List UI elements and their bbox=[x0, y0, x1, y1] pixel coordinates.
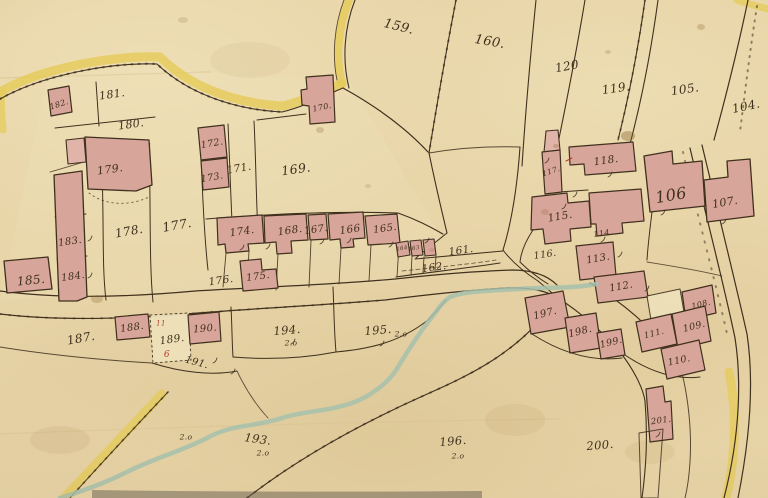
paper-stain bbox=[178, 17, 188, 23]
cadastral-map-scan: 182.181.180.179.170.159.160.120119.105.1… bbox=[0, 0, 768, 498]
surveyor-tick-mark bbox=[213, 358, 217, 363]
boundary-119-path-w bbox=[618, 0, 645, 140]
parcel-194-west bbox=[231, 307, 233, 357]
paper-stain bbox=[605, 50, 611, 54]
paper-stain bbox=[621, 131, 635, 141]
parcel-label-190: 190. bbox=[193, 322, 218, 335]
parcel-label-2o: 2.o bbox=[256, 449, 270, 458]
paper-stain bbox=[91, 295, 103, 303]
parcel-label-200: 200. bbox=[585, 437, 614, 453]
parcel-label-185: 185. bbox=[16, 272, 46, 289]
parcel-label-2o: 2.o bbox=[394, 330, 408, 339]
parcel-label-11: 11 bbox=[156, 319, 166, 327]
bldg-107 bbox=[704, 159, 754, 222]
parcel-label-160: 160. bbox=[473, 32, 506, 52]
boundary-path-105 bbox=[630, 0, 658, 144]
boundary-119-path-ticks bbox=[618, 0, 645, 140]
cadastral-map: 182.181.180.179.170.159.160.120119.105.1… bbox=[0, 0, 768, 498]
parcel-label-2o: 2.o bbox=[284, 339, 298, 348]
parcel-label-120: 120 bbox=[554, 57, 580, 75]
cluster-line-115sw bbox=[520, 230, 533, 262]
scan-edge-shadow bbox=[92, 490, 482, 498]
surveyor-tick-mark bbox=[618, 252, 622, 257]
parcel-191-east bbox=[237, 371, 268, 418]
paper-stain bbox=[365, 184, 371, 188]
surveyor-tick-mark bbox=[573, 192, 577, 197]
parcel-label-104: 104. bbox=[731, 96, 762, 116]
parcel-label-193: 193. bbox=[244, 430, 273, 448]
bldg-117-annex bbox=[544, 130, 560, 152]
parcel-194-south bbox=[233, 352, 336, 358]
parcel-label-6: 6 bbox=[164, 350, 170, 360]
yard201-east bbox=[681, 369, 691, 498]
parcel-label-116: 116. bbox=[533, 248, 557, 262]
paper-stain bbox=[30, 426, 90, 454]
parcel-label-105: 105. bbox=[670, 80, 700, 98]
paper-stain bbox=[210, 42, 290, 78]
road-band-bottomright bbox=[726, 372, 734, 498]
boundary-161-east bbox=[503, 147, 520, 250]
parcel-label-2o: 2.o bbox=[451, 452, 465, 461]
parcel-label-161: 161. bbox=[448, 243, 474, 258]
parcel-label-196: 196. bbox=[439, 433, 467, 449]
parcel-194-195 bbox=[333, 287, 336, 352]
paper-stain bbox=[429, 248, 435, 252]
paper-stain bbox=[485, 404, 545, 436]
parcel-label-114: 114. bbox=[593, 227, 613, 239]
boundary-161-north-field bbox=[429, 147, 520, 153]
bldg-163b bbox=[423, 239, 436, 256]
parcel-label-195: 195. bbox=[364, 322, 392, 338]
parcel-label-159: 159. bbox=[382, 16, 415, 38]
parcel-label-194: 194. bbox=[273, 322, 301, 338]
parcel-label-162: 162. bbox=[421, 260, 447, 275]
parcel-label-2o: 2.o bbox=[179, 433, 193, 442]
boundary-105-104 bbox=[714, 0, 748, 140]
boundary-160-120 bbox=[522, 0, 536, 166]
paper-stain bbox=[553, 144, 559, 148]
bldg-179-annex bbox=[66, 138, 86, 164]
paper-stain bbox=[697, 24, 705, 30]
road-band-topright bbox=[737, 0, 768, 9]
paper-stain bbox=[316, 127, 324, 133]
paper-stain bbox=[625, 440, 675, 464]
cluster-line-106s bbox=[647, 212, 652, 260]
parcel-label-187: 187. bbox=[66, 329, 96, 348]
parcel-label-119: 119. bbox=[601, 79, 631, 97]
parcel-label-191: 191. bbox=[184, 355, 210, 372]
parcel-187-south bbox=[0, 347, 152, 363]
